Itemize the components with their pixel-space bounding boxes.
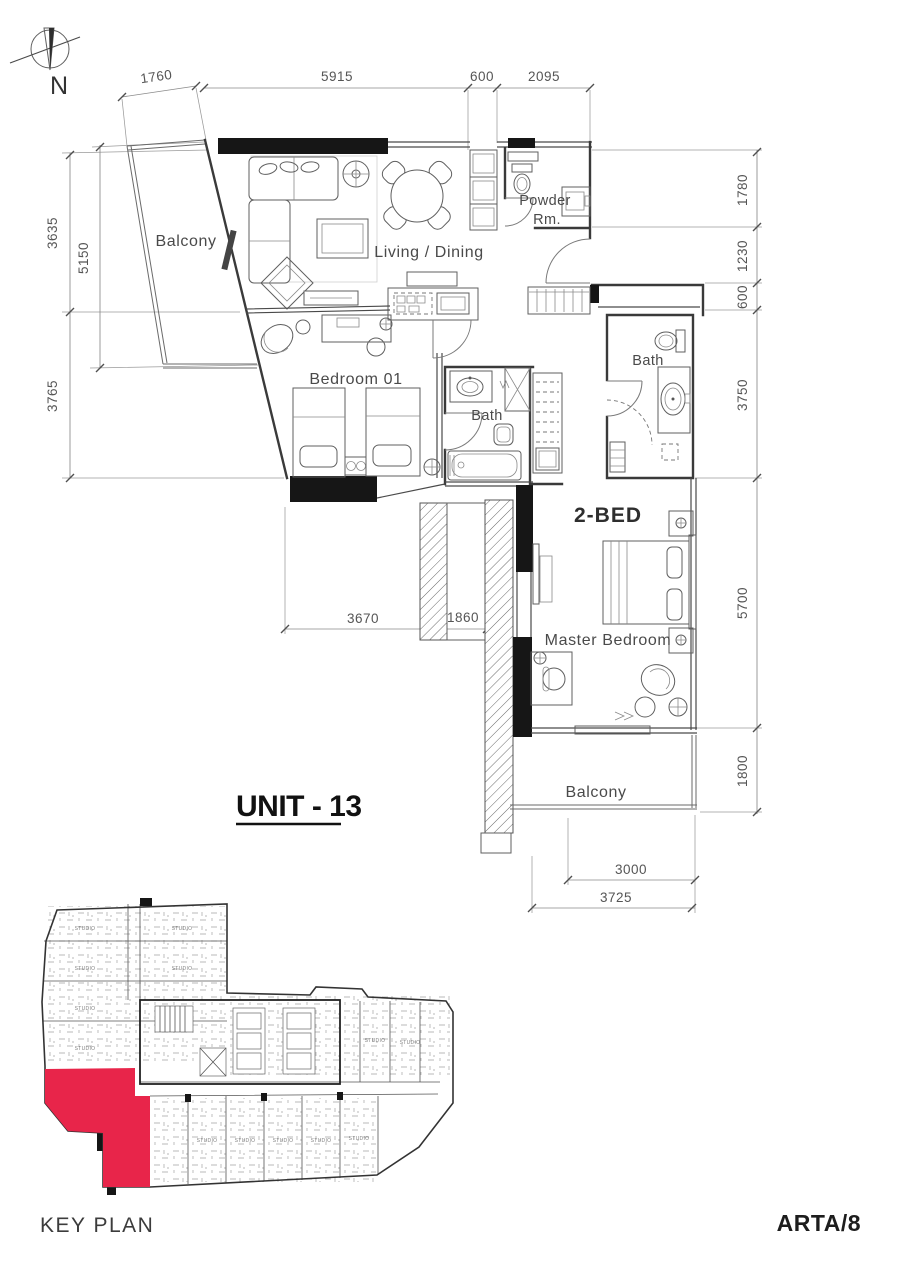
dim-label-1800: 1800 <box>735 755 750 787</box>
studio-label: STUDIO <box>311 1138 332 1144</box>
bathtub-icon <box>448 451 521 480</box>
unit-plan: Balcony <box>127 138 703 853</box>
ceiling-fixture-icon <box>424 459 440 475</box>
room-label-bath-2: Bath <box>632 353 663 369</box>
bath2-vanity <box>658 367 690 433</box>
kitchen-counter <box>388 272 478 320</box>
master-tv-console <box>533 544 552 604</box>
coffee-table <box>317 219 368 258</box>
key-plan-detail-left-wing <box>46 906 226 1066</box>
studio-label: STUDIO <box>75 1046 96 1052</box>
unit-type-label: 2-BED <box>574 504 642 527</box>
master-bed <box>603 535 696 629</box>
dim-label-5915: 5915 <box>321 69 353 84</box>
bath-2: Bath <box>607 315 693 478</box>
lounge-chair <box>256 319 310 360</box>
studio-label: STUDIO <box>75 926 96 932</box>
twin-bed-2 <box>366 388 420 476</box>
powder-room: Powder Rm. <box>505 142 590 238</box>
room-label-living-dining: Living / Dining <box>374 244 484 261</box>
balcony-bottom: Balcony <box>510 735 697 809</box>
dim-label-3750: 3750 <box>735 379 750 411</box>
entry-closet <box>528 287 590 314</box>
studio-label: STUDIO <box>400 1040 421 1046</box>
dim-label-3635: 3635 <box>45 217 60 249</box>
unit-title: UNIT - 13 <box>236 790 362 823</box>
bath-1: Bath <box>424 367 533 486</box>
studio-label: STUDIO <box>75 1006 96 1012</box>
dim-label-2095: 2095 <box>528 69 560 84</box>
dim-label-3670: 3670 <box>347 611 379 626</box>
twin-bed-1 <box>293 388 345 477</box>
door-direction-arrow <box>615 712 633 720</box>
bath2-toilet-icon <box>655 330 685 352</box>
bath1-vanity <box>450 371 509 402</box>
wardrobe <box>533 373 562 473</box>
wall-black-bedroom <box>290 476 377 502</box>
dim-label-3000: 3000 <box>615 862 647 877</box>
dim-label-1780: 1780 <box>735 174 750 206</box>
studio-label: STUDIO <box>197 1138 218 1144</box>
studio-label: STUDIO <box>172 926 193 932</box>
dim-label-1760: 1760 <box>139 67 173 86</box>
key-plan-highlighted-unit <box>45 1068 150 1187</box>
key-plan-title: KEY PLAN <box>40 1214 154 1237</box>
wall-black-top <box>218 138 388 154</box>
studio-label: STUDIO <box>365 1038 386 1044</box>
floor-plan-sheet: N 1760 5915 600 2095 3635 5150 3765 1780… <box>0 0 900 1273</box>
dim-label-3765: 3765 <box>45 380 60 412</box>
studio-label: STUDIO <box>172 966 193 972</box>
nightstand-bottom <box>669 628 693 653</box>
dim-label-600-right: 600 <box>735 285 750 309</box>
armchair <box>635 659 687 717</box>
floor-plan-drawing: N 1760 5915 600 2095 3635 5150 3765 1780… <box>0 0 900 1273</box>
master-bedroom: 2-BED Master Bedroom <box>513 478 697 737</box>
room-label-balcony-bottom: Balcony <box>565 784 626 801</box>
room-label-powder-2: Rm. <box>533 212 561 228</box>
master-desk <box>531 652 572 705</box>
studio-label: STUDIO <box>273 1138 294 1144</box>
nightstand-top <box>669 511 693 536</box>
room-label-bath-1: Bath <box>471 408 502 424</box>
bath1-toilet-icon <box>494 424 513 445</box>
shaft-closet <box>505 368 530 411</box>
dim-label-1860: 1860 <box>447 610 479 625</box>
key-plan: STUDIO STUDIO STUDIO STUDIO STUDIO STUDI… <box>42 898 453 1195</box>
dim-label-5700: 5700 <box>735 587 750 619</box>
studio-label: STUDIO <box>75 966 96 972</box>
project-code: ARTA/8 <box>777 1210 861 1236</box>
dim-label-600-top: 600 <box>470 69 494 84</box>
ceiling-fixture-icon <box>380 318 392 330</box>
toilet-icon <box>512 164 532 194</box>
nightstand <box>345 457 366 475</box>
north-arrow-icon: N <box>10 28 80 100</box>
room-label-master-bedroom: Master Bedroom <box>545 632 672 649</box>
tv-console <box>304 291 358 305</box>
dining-table <box>379 158 454 232</box>
structure-walls <box>377 484 513 853</box>
room-label-bedroom-01: Bedroom 01 <box>309 371 402 388</box>
room-label-powder-1: Powder <box>519 193 571 209</box>
studio-label: STUDIO <box>349 1136 370 1142</box>
room-label-balcony-top: Balcony <box>155 233 216 250</box>
shower <box>607 400 678 472</box>
entry-foyer <box>528 239 703 315</box>
dim-label-3725: 3725 <box>600 890 632 905</box>
dim-label-1230: 1230 <box>735 240 750 272</box>
north-label: N <box>50 72 68 100</box>
coffee-table-inner <box>322 224 363 253</box>
studio-label: STUDIO <box>235 1138 256 1144</box>
dim-label-5150: 5150 <box>76 242 91 274</box>
kitchen-tall-cabinets <box>470 150 497 230</box>
ceiling-fixture-icon <box>343 161 369 187</box>
